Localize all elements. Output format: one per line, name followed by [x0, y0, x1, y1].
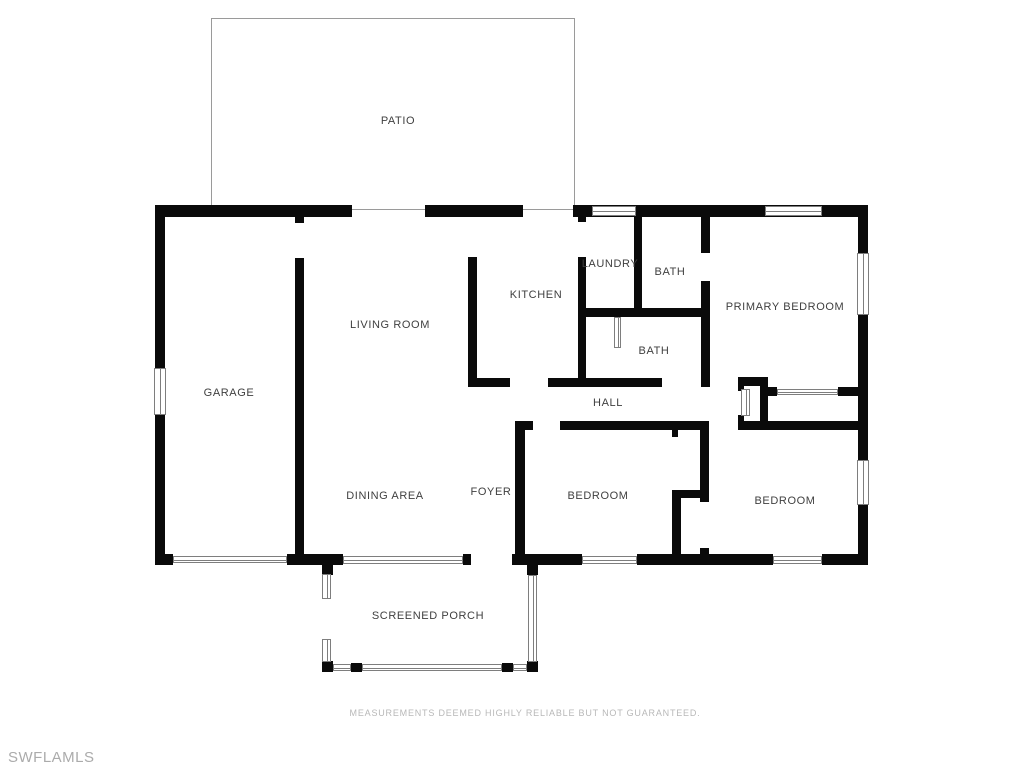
wall [858, 205, 868, 253]
wall [548, 378, 662, 387]
wall [468, 257, 477, 387]
wall [295, 217, 304, 223]
room-label-foyer: FOYER [471, 486, 512, 498]
wall [560, 421, 708, 430]
wall [822, 554, 868, 565]
window-symbol [582, 556, 637, 564]
wall [578, 217, 586, 222]
patio-outline [211, 18, 575, 210]
wall [463, 554, 471, 565]
wall [768, 387, 777, 396]
wall [838, 387, 868, 396]
room-label-hall: HALL [593, 397, 623, 409]
wall [468, 378, 510, 387]
room-label-kitchen: KITCHEN [510, 289, 562, 301]
window-symbol [513, 664, 527, 671]
window-symbol [322, 574, 331, 599]
wall [155, 205, 165, 368]
floor-plan: PATIO LAUNDRY BATH KITCHEN LIVING ROOM P… [0, 0, 1024, 768]
room-label-garage: GARAGE [204, 387, 255, 399]
wall [672, 430, 678, 437]
wall [155, 554, 173, 565]
wall [351, 663, 362, 672]
room-label-porch: SCREENED PORCH [372, 610, 484, 622]
window-symbol [741, 389, 750, 416]
window-symbol [777, 389, 838, 395]
wall [322, 661, 333, 672]
window-symbol [857, 460, 869, 505]
window-symbol [614, 317, 621, 348]
wall [578, 257, 586, 387]
wall [738, 421, 868, 430]
window-symbol [765, 206, 822, 216]
wall [701, 217, 710, 253]
window-symbol [528, 575, 537, 662]
room-label-laundry: LAUNDRY [582, 258, 639, 270]
wall [155, 205, 352, 217]
wall [295, 258, 304, 563]
room-label-bedroom1: BEDROOM [567, 490, 628, 502]
room-label-dining: DINING AREA [346, 490, 424, 502]
window-symbol [362, 664, 502, 671]
wall [760, 377, 768, 427]
watermark-logo: SWFLAMLS [8, 749, 95, 766]
window-symbol [322, 639, 331, 662]
wall [502, 663, 513, 672]
wall [155, 415, 165, 565]
wall [672, 490, 681, 560]
wall [578, 308, 710, 317]
window-symbol [154, 368, 166, 415]
room-label-bath2: BATH [639, 345, 670, 357]
window-symbol [592, 206, 636, 216]
window-symbol [857, 253, 869, 315]
room-label-patio: PATIO [381, 115, 415, 127]
disclaimer-text: MEASUREMENTS DEEMED HIGHLY RELIABLE BUT … [350, 708, 701, 718]
wall [425, 205, 523, 217]
wall [515, 421, 525, 558]
window-symbol [343, 556, 463, 564]
wall [701, 281, 710, 387]
window-symbol [773, 556, 822, 564]
room-label-primary: PRIMARY BEDROOM [726, 301, 845, 313]
room-label-bath1: BATH [655, 266, 686, 278]
wall [527, 661, 538, 672]
window-symbol [333, 664, 351, 671]
window-symbol [173, 556, 287, 563]
room-label-living: LIVING ROOM [350, 319, 430, 331]
wall [700, 548, 709, 556]
room-label-bedroom2: BEDROOM [754, 495, 815, 507]
wall [527, 564, 538, 575]
